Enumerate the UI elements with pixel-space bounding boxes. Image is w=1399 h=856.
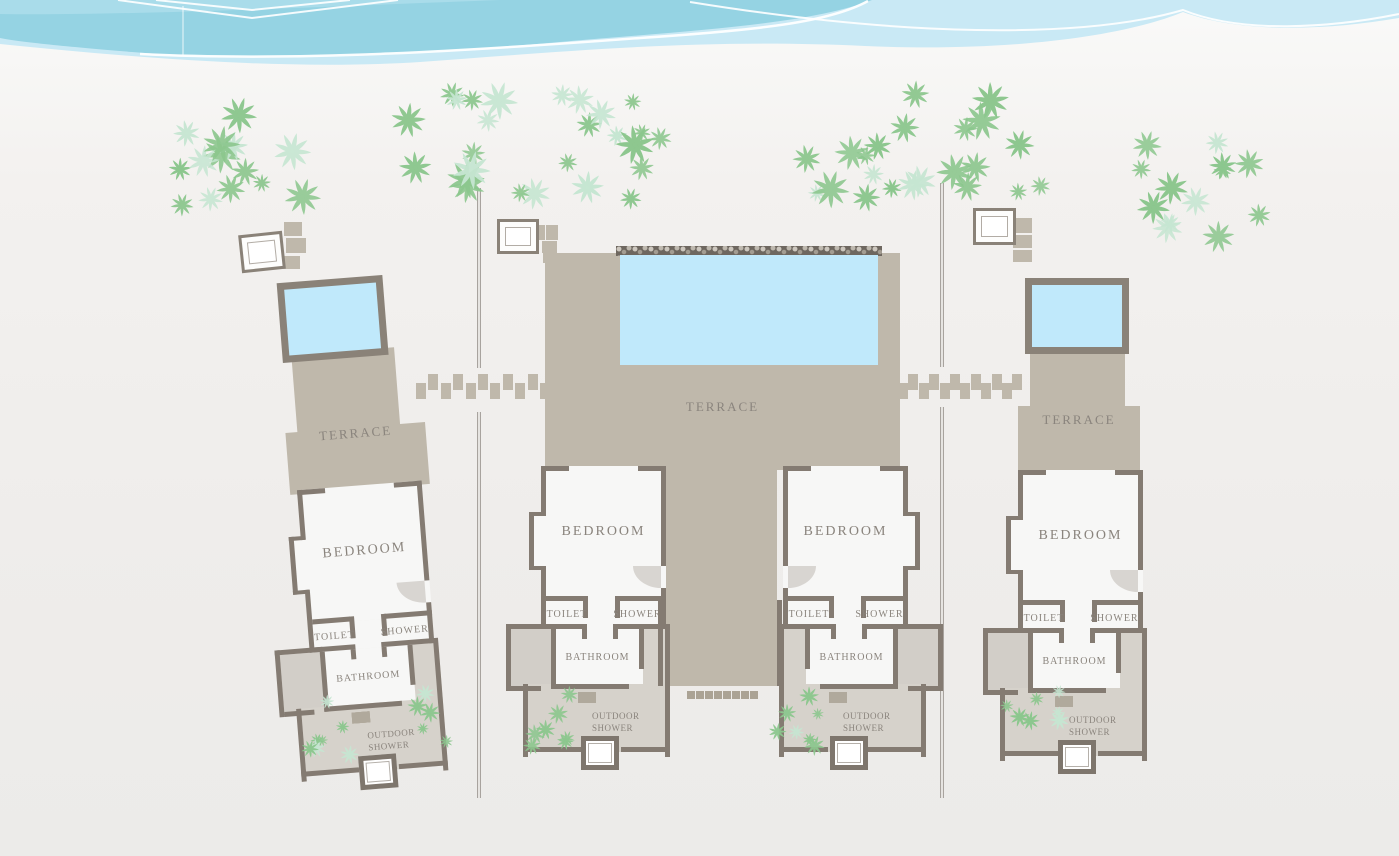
bedroom-label: BEDROOM <box>783 524 908 540</box>
outdoor-shower-label: OUTDOOR SHOWER <box>367 724 445 754</box>
stepping-stone <box>515 383 525 399</box>
palm-tree-icon <box>457 137 491 171</box>
toilet-label: TOILET <box>1018 613 1070 624</box>
bathtub-rim <box>588 743 612 763</box>
annex-room <box>511 629 554 689</box>
palm-tree-icon <box>1208 151 1238 181</box>
bathtub <box>1058 740 1096 774</box>
stepping-stone <box>971 374 981 390</box>
palm-tree-icon <box>184 142 224 182</box>
palm-tree-icon <box>270 129 316 174</box>
palm-tree-icon <box>1128 126 1167 164</box>
palm-tree-icon <box>629 120 655 146</box>
palm-tree-icon <box>1175 180 1217 222</box>
palm-tree-icon <box>957 149 993 185</box>
palm-tree-icon <box>852 142 879 169</box>
wall <box>903 466 908 516</box>
palm-tree-icon <box>948 167 987 206</box>
wall <box>529 512 545 516</box>
boundary-fence <box>477 188 481 368</box>
bedroom-label: BEDROOM <box>1018 528 1143 544</box>
stepping-stone <box>940 383 950 399</box>
bathroom-label: BATHROOM <box>805 652 898 663</box>
palm-tree-icon <box>1151 167 1193 208</box>
stepping-stone <box>1012 374 1022 390</box>
wall <box>529 512 534 570</box>
entrance-pavilion <box>973 208 1016 245</box>
pool-rock-edge <box>616 246 882 256</box>
stepping-stone <box>528 374 538 390</box>
terrace <box>545 253 900 470</box>
stepping-stone <box>898 383 908 399</box>
palm-tree-icon <box>1246 203 1271 228</box>
palm-tree-icon <box>647 126 673 151</box>
sanitary-labels: TOILET SHOWER <box>783 603 908 627</box>
wall <box>1090 633 1095 643</box>
entrance-pavilion <box>238 231 286 273</box>
palm-tree-icon <box>170 116 204 150</box>
stepping-stone <box>908 374 918 390</box>
stepping-stone <box>478 374 488 390</box>
palm-tree-icon <box>1128 156 1154 182</box>
wall <box>506 624 511 691</box>
outdoor-shower-label: OUTDOOR SHOWER <box>843 710 919 734</box>
outdoor-shower-label: OUTDOOR SHOWER <box>1069 714 1145 738</box>
palm-tree-icon <box>1001 126 1038 163</box>
wall <box>983 628 988 695</box>
palm-tree-icon <box>214 127 253 166</box>
palm-tree-icon <box>616 183 647 214</box>
wall <box>1023 600 1061 605</box>
palm-tree-icon <box>625 152 658 185</box>
palm-tree-icon <box>603 122 630 150</box>
shower-label: SHOWER <box>376 623 434 638</box>
wall <box>546 596 584 601</box>
palm-tree-icon <box>860 162 886 188</box>
shower-label: SHOWER <box>851 609 908 620</box>
palm-tree-icon <box>879 175 905 202</box>
bathtub <box>830 736 868 770</box>
palm-tree-icon <box>858 127 897 166</box>
wall <box>783 596 831 601</box>
palm-tree-icon <box>567 167 607 207</box>
stepping-stone <box>490 383 500 399</box>
pavilion-daybed <box>247 240 277 265</box>
stepping-stone <box>284 222 302 236</box>
palm-tree-icon <box>1028 173 1054 199</box>
wall <box>904 512 920 516</box>
entrance-pavilion <box>497 219 539 254</box>
stepping-stone <box>981 383 991 399</box>
resort-floor-plan: TERRACE BEDRO <box>0 0 1399 856</box>
palm-tree-icon <box>612 122 659 168</box>
terrace <box>1030 347 1125 409</box>
bedroom-label: BEDROOM <box>541 524 666 540</box>
wall <box>1006 516 1011 574</box>
wall <box>865 596 903 601</box>
toilet-label: TOILET <box>541 609 593 620</box>
palm-tree-icon <box>572 108 606 142</box>
terrace <box>1018 406 1140 480</box>
pool-edge <box>1025 278 1129 354</box>
palm-tree-icon <box>513 172 557 216</box>
palm-tree-icon <box>1202 127 1233 158</box>
toilet-label: TOILET <box>783 609 835 620</box>
boundary-fence <box>940 183 944 367</box>
palm-tree-icon <box>220 96 259 134</box>
villa-unit: BEDROOM TOILET SHOWER BATHROOM OUTDOOR S… <box>261 478 482 804</box>
stepping-stone <box>543 253 557 263</box>
palm-tree-icon <box>165 155 195 184</box>
bathtub <box>358 753 399 790</box>
wall <box>915 512 920 570</box>
left-villa: TERRACE BEDRO <box>255 266 478 838</box>
annex-room <box>988 633 1031 693</box>
palm-tree-icon <box>440 154 491 205</box>
palm-tree-icon <box>197 121 245 169</box>
stepping-stone <box>453 374 463 390</box>
pool <box>284 282 381 355</box>
bathtub-rim <box>366 761 391 783</box>
palm-tree-icon <box>951 114 981 143</box>
palm-tree-icon <box>832 134 871 172</box>
palm-tree-icon <box>252 173 273 194</box>
palm-tree-icon <box>788 140 825 177</box>
wall <box>805 629 810 669</box>
wall <box>661 466 666 566</box>
wall <box>1116 633 1121 673</box>
palm-tree-icon <box>1156 210 1183 238</box>
pool <box>620 255 878 365</box>
stepping-stone <box>992 374 1002 390</box>
palm-tree-icon <box>1196 215 1240 259</box>
stepping-stone <box>542 241 557 253</box>
shower-label: SHOWER <box>609 609 666 620</box>
wall <box>582 629 587 639</box>
palm-tree-icon <box>194 127 249 182</box>
palm-tree-icon <box>210 168 251 209</box>
sea-waves <box>0 0 1399 92</box>
villa-unit: BEDROOM TOILET SHOWER BATHROOM OUTDOOR S… <box>982 470 1179 782</box>
stepping-stone <box>929 374 939 390</box>
stepping-stone <box>919 383 929 399</box>
stepping-stone <box>286 238 306 253</box>
palm-tree-icon <box>554 149 581 176</box>
palm-tree-icon <box>806 165 854 213</box>
stepping-stone <box>1002 383 1012 399</box>
palm-tree-icon <box>225 152 265 191</box>
stepping-stone <box>546 225 558 240</box>
stepping-stone <box>950 374 960 390</box>
terrace-label: TERRACE <box>545 399 900 415</box>
palm-tree-icon <box>885 108 924 147</box>
palm-tree-icon <box>1008 182 1028 202</box>
palm-tree-icon <box>899 160 941 202</box>
stepping-stone <box>1013 250 1032 262</box>
villa-unit: BEDROOM TOILET SHOWER BATHROOM OUTDOOR S… <box>747 466 944 778</box>
stepping-stone <box>466 383 476 399</box>
palm-tree-icon <box>1149 209 1187 248</box>
outdoor-steps <box>352 711 370 712</box>
pool <box>1032 285 1122 347</box>
wall <box>831 629 836 639</box>
sanitary-labels: TOILET SHOWER <box>541 603 666 627</box>
palm-tree-icon <box>620 89 645 114</box>
palm-tree-icon <box>1130 184 1177 231</box>
wall <box>639 629 644 669</box>
wall <box>1018 470 1023 520</box>
terrace-label: TERRACE <box>1018 412 1140 428</box>
palm-tree-icon <box>507 179 534 206</box>
stepping-stone <box>503 374 513 390</box>
wall <box>1138 470 1143 570</box>
wall <box>1095 600 1143 605</box>
stepping-stone <box>540 383 550 399</box>
wall <box>1006 516 1022 520</box>
bathtub-rim <box>837 743 861 763</box>
wall <box>382 647 388 657</box>
palm-tree-icon <box>395 147 436 188</box>
wall <box>938 624 943 691</box>
palm-tree-icon <box>446 145 496 196</box>
wall <box>541 466 546 516</box>
pavilion-daybed <box>981 216 1008 237</box>
wall <box>783 466 788 566</box>
palm-tree-icon <box>583 95 620 132</box>
bathtub-rim <box>1065 747 1089 767</box>
wall <box>351 649 357 659</box>
annex-room <box>895 629 938 689</box>
palm-tree-icon <box>385 97 431 143</box>
palm-tree-icon <box>848 179 885 216</box>
palm-tree-icon <box>194 183 227 216</box>
stepping-stone <box>552 374 562 390</box>
wall <box>618 596 666 601</box>
palm-tree-icon <box>806 183 827 204</box>
palm-tree-icon <box>961 100 1003 141</box>
palm-tree-icon <box>1230 145 1268 183</box>
sanitary-labels: TOILET SHOWER <box>1018 607 1143 631</box>
palm-tree-icon <box>166 189 199 222</box>
palm-tree-icon <box>473 105 504 135</box>
wall <box>613 629 618 639</box>
stepping-stone <box>960 383 970 399</box>
wall <box>862 629 867 639</box>
bathtub <box>581 736 619 770</box>
palm-tree-icon <box>894 166 931 203</box>
outdoor-shower-label: OUTDOOR SHOWER <box>592 710 668 734</box>
pavilion-daybed <box>505 227 531 246</box>
bathroom-label: BATHROOM <box>1028 656 1121 667</box>
wall <box>1059 633 1064 643</box>
palm-tree-icon <box>1213 160 1232 180</box>
villa-unit: BEDROOM TOILET SHOWER BATHROOM OUTDOOR S… <box>505 466 702 778</box>
toilet-label: TOILET <box>308 629 361 644</box>
palm-tree-icon <box>278 172 327 221</box>
bathroom-label: BATHROOM <box>551 652 644 663</box>
shower-label: SHOWER <box>1086 613 1143 624</box>
